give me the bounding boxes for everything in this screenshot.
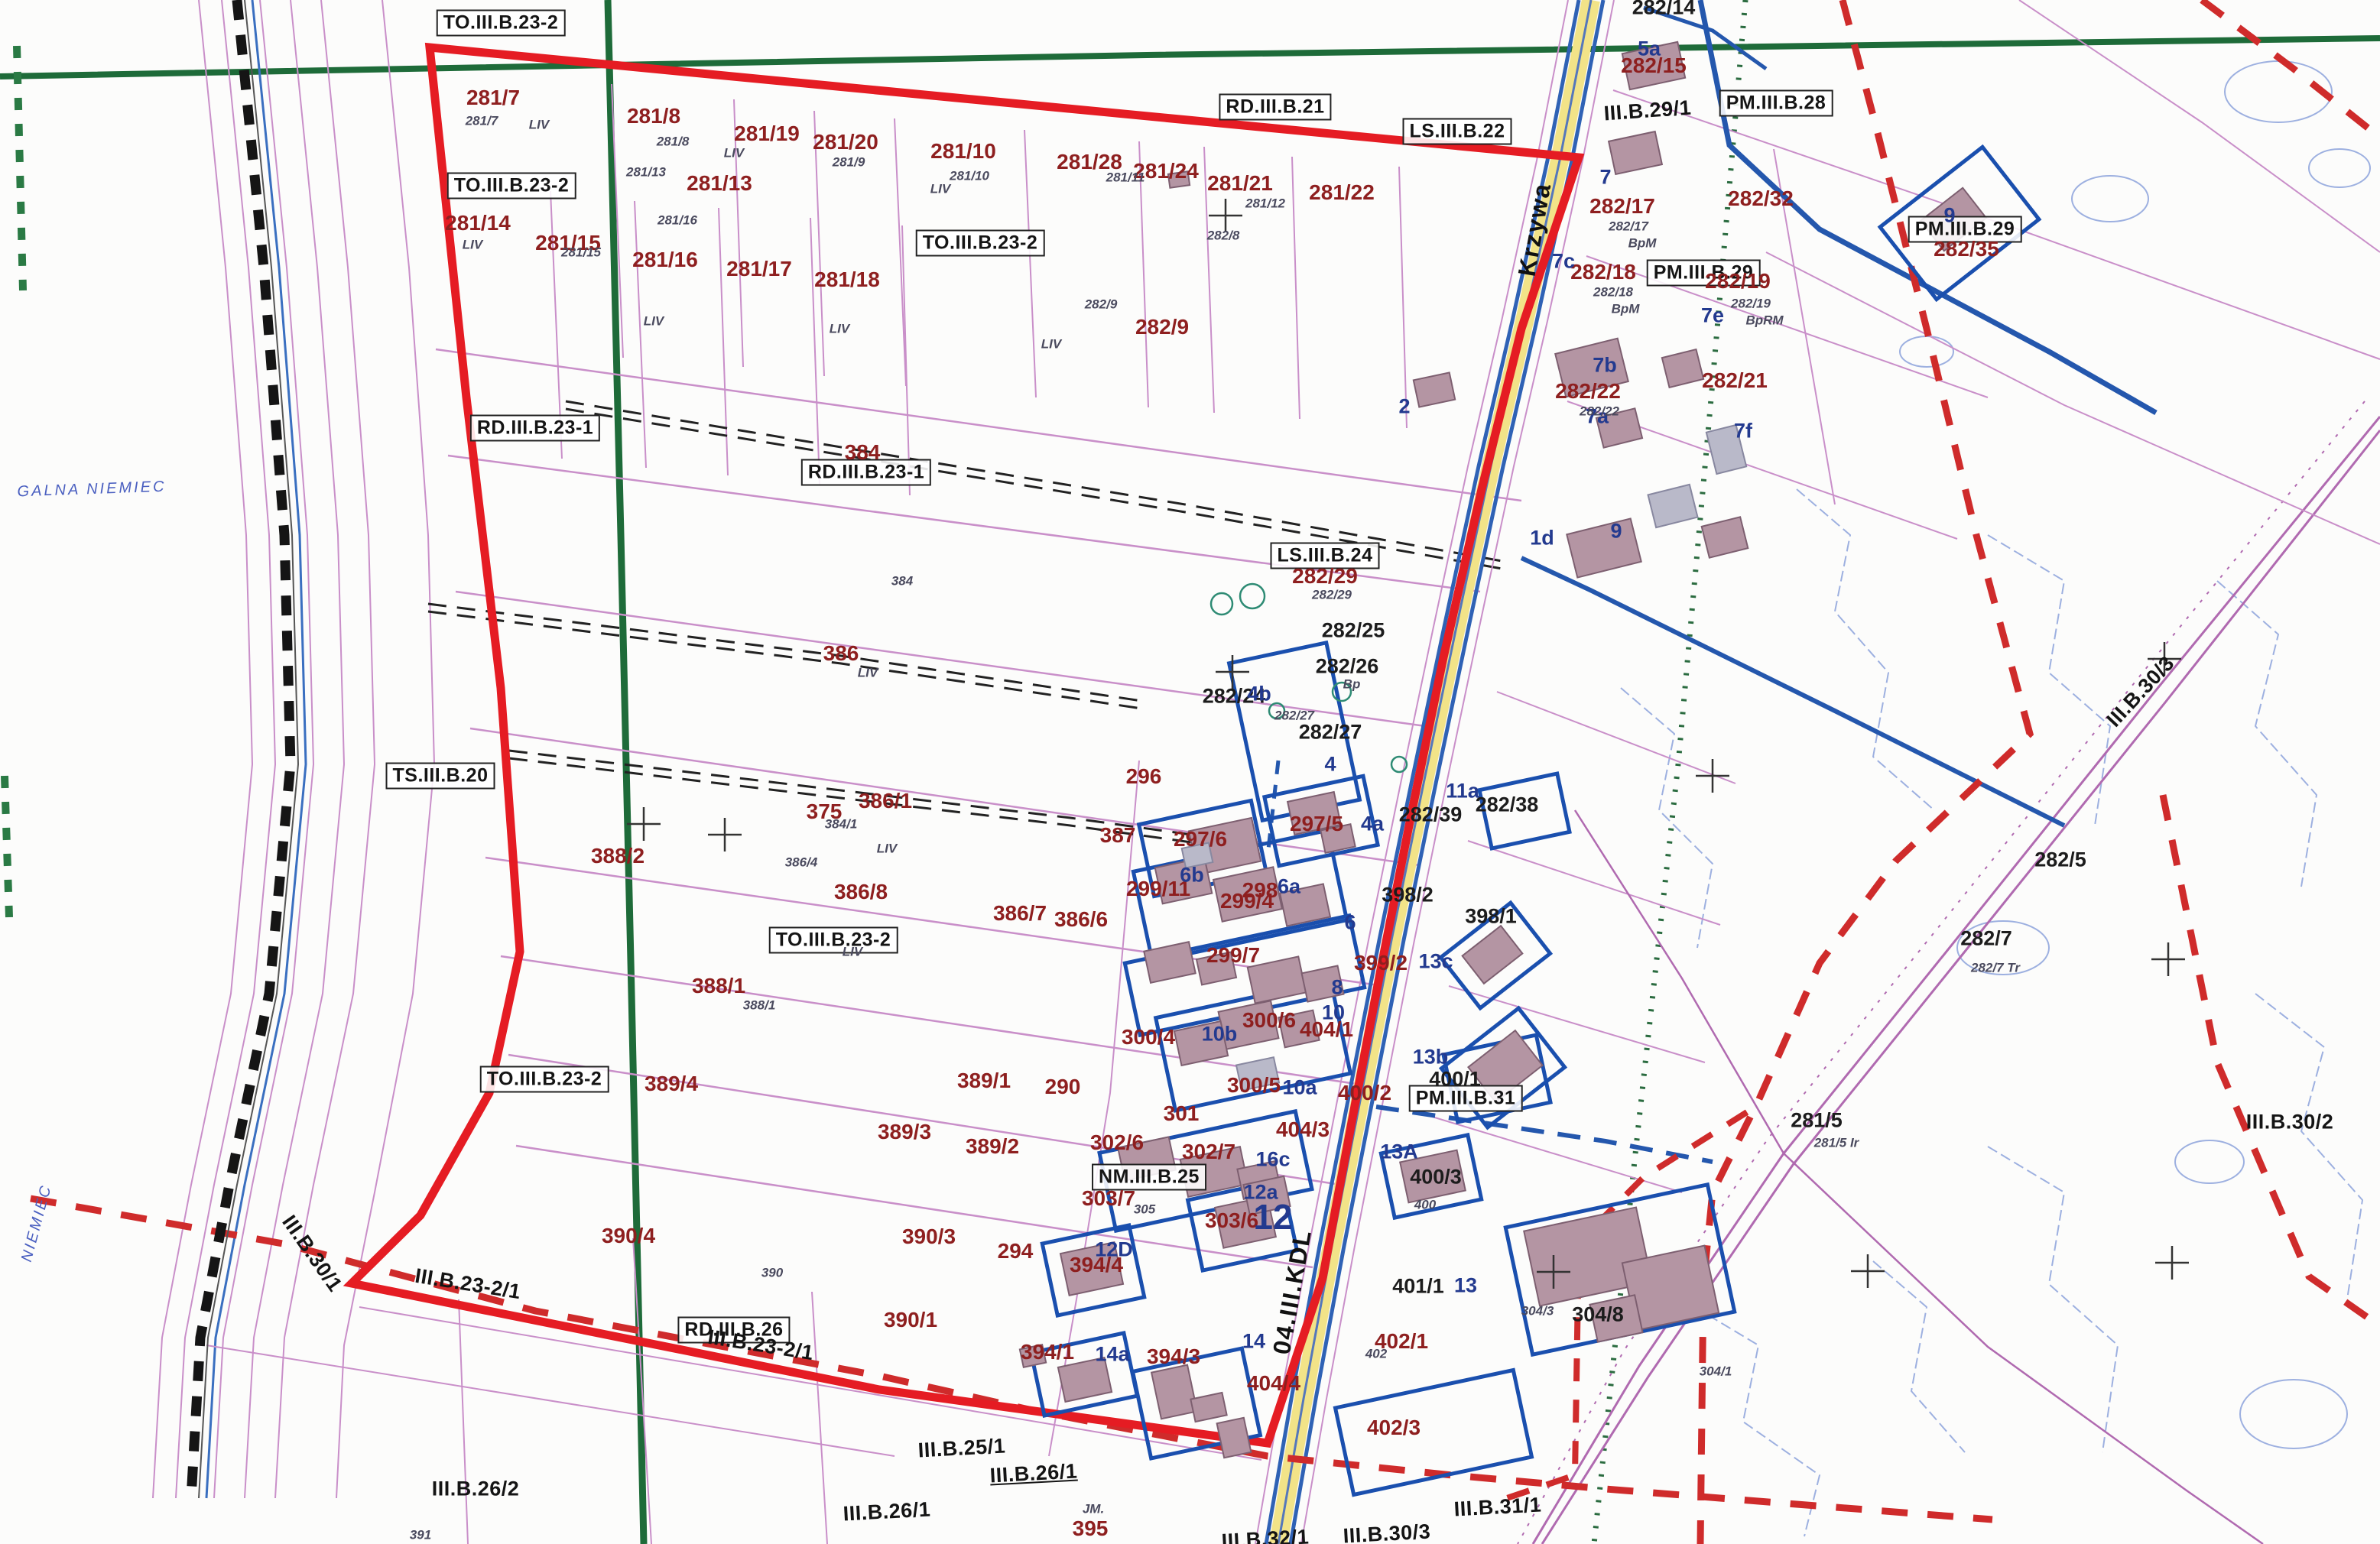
building-number: 4	[1324, 754, 1336, 775]
parcel-number: 281/10	[950, 170, 989, 183]
parcel-number: JM.	[1083, 1503, 1104, 1516]
building-number: 9	[1943, 206, 1955, 226]
building-number: 7b	[1593, 355, 1617, 376]
parcel-number: LIV	[843, 946, 862, 959]
zone-label: III.B.25/1	[917, 1436, 1006, 1461]
parcel-number: 400/1	[1429, 1069, 1481, 1090]
building-number: 4a	[1361, 814, 1384, 835]
parcel-number: BpM	[1628, 237, 1657, 250]
parcel-number: 304/8	[1572, 1305, 1624, 1325]
parcel-number: 281/10	[930, 141, 996, 162]
parcel-number: LIV	[529, 118, 549, 131]
building-number: 6	[1344, 913, 1356, 933]
parcel-number: 281/15	[561, 246, 601, 259]
parcel-number: 281/7	[466, 115, 498, 128]
building-number: 14	[1242, 1332, 1265, 1352]
parcel-number: 305	[1134, 1203, 1155, 1216]
parcel-number: 282/21	[1702, 370, 1768, 391]
zone-label: TS.III.B.20	[386, 763, 495, 790]
parcel-number: 281/17	[726, 258, 792, 280]
parcel-number: 299/7	[1206, 945, 1260, 966]
parcel-number: LIV	[1041, 338, 1061, 351]
parcel-number: 282/18	[1570, 261, 1636, 283]
parcel-number: 281/11	[1106, 171, 1145, 184]
parcel-number: 394/1	[1021, 1341, 1074, 1363]
zone-label: TO.III.B.23-2	[480, 1066, 609, 1093]
zone-label: III.B.32/1	[1221, 1527, 1310, 1544]
parcel-number: Bp	[1343, 678, 1361, 691]
zone-label: III.B.30/3	[2103, 653, 2178, 731]
building-number: 6b	[1180, 865, 1204, 886]
parcel-number: 281/5	[1791, 1111, 1843, 1131]
zone-label: TO.III.B.23-2	[437, 10, 566, 37]
zone-label: III.B.23-2/1	[414, 1266, 522, 1303]
building-number: 7e	[1701, 306, 1724, 326]
building-number: 13A	[1380, 1142, 1418, 1163]
parcel-number: 402/3	[1367, 1417, 1421, 1439]
parcel-number: 281/21	[1207, 173, 1273, 194]
handwritten-label: GALNA NIEMIEC	[17, 479, 167, 500]
parcel-number: 281/7	[466, 87, 520, 109]
zone-label: TO.III.B.23-2	[447, 173, 576, 199]
parcel-number: 386/8	[834, 881, 888, 903]
parcel-number: 389/2	[966, 1136, 1019, 1157]
building-number: 10	[1322, 1003, 1345, 1023]
parcel-number: 282/22	[1555, 381, 1621, 402]
parcel-number: 281/14	[445, 212, 511, 234]
parcel-number: 384/1	[825, 818, 858, 831]
building-number: 4b	[1247, 684, 1271, 705]
parcel-number: 400/3	[1410, 1167, 1462, 1188]
parcel-number: 282/29	[1312, 589, 1352, 602]
building-number: 7f	[1734, 421, 1752, 442]
parcel-number: 281/13	[687, 173, 752, 194]
parcel-number: 281/8	[657, 135, 690, 148]
parcel-number: 282/14	[1632, 0, 1696, 18]
building-number: 14a	[1095, 1345, 1129, 1365]
zone-label: RD.III.B.21	[1219, 94, 1331, 121]
parcel-number: LIV	[877, 842, 897, 855]
building-number: 8	[1331, 978, 1343, 998]
parcel-number: 388/1	[692, 975, 745, 997]
parcel-number: 300/5	[1227, 1075, 1281, 1096]
building-number: 13	[1454, 1276, 1477, 1296]
parcel-number: 386	[823, 643, 859, 664]
parcel-number: 282/9	[1135, 316, 1189, 338]
parcel-number: 281/16	[632, 249, 698, 271]
parcel-number: 302/7	[1182, 1141, 1235, 1163]
parcel-number: 296	[1126, 766, 1162, 787]
parcel-number: 400	[1414, 1199, 1436, 1212]
parcel-number: 282/25	[1322, 621, 1385, 641]
parcel-number: 299/4	[1220, 890, 1274, 912]
parcel-number: 389/1	[957, 1070, 1011, 1092]
parcel-number: 386/6	[1054, 909, 1108, 930]
parcel-number: 282/32	[1728, 188, 1794, 209]
parcel-number: 282/17	[1609, 220, 1648, 233]
parcel-number: 300/6	[1242, 1010, 1296, 1031]
building-number: 7	[1599, 167, 1611, 188]
parcel-number: LIV	[830, 323, 849, 336]
building-number: 7c	[1552, 251, 1575, 272]
parcel-number: 282/17	[1589, 196, 1655, 217]
parcel-number: 387	[1100, 825, 1136, 846]
parcel-number: 404/4	[1247, 1373, 1300, 1394]
parcel-number: 398/2	[1382, 885, 1434, 906]
parcel-number: 282/8	[1207, 229, 1240, 242]
parcel-number: 294	[998, 1241, 1034, 1262]
street-label: Krzywa	[1514, 180, 1554, 278]
parcel-number: 290	[1045, 1076, 1081, 1098]
parcel-number: 390	[761, 1267, 783, 1280]
parcel-number: 282/26	[1316, 657, 1379, 677]
parcel-number: BpM	[1612, 303, 1640, 316]
parcel-number: 303/7	[1082, 1188, 1135, 1209]
parcel-number: 390/4	[602, 1225, 655, 1247]
parcel-number: 282/29	[1292, 566, 1358, 587]
parcel-number: 281/8	[627, 105, 680, 127]
parcel-number: 384	[891, 575, 913, 588]
building-number: 6a	[1278, 877, 1300, 897]
parcel-number: 400/2	[1338, 1082, 1391, 1104]
building-number: 1d	[1530, 528, 1554, 549]
parcel-number: 404/3	[1276, 1119, 1330, 1140]
parcel-number: 386/7	[993, 903, 1047, 924]
parcel-number: BpRM	[1745, 314, 1783, 327]
parcel-number: 304/3	[1521, 1305, 1554, 1318]
parcel-number: LIV	[463, 238, 482, 251]
zone-label: III.B.30/3	[1343, 1522, 1431, 1544]
parcel-number: 281/19	[734, 123, 800, 144]
parcel-number: 390/1	[884, 1309, 937, 1331]
parcel-number: 282/5	[2034, 850, 2086, 871]
parcel-number: 384	[845, 442, 881, 463]
building-number: 16c	[1255, 1150, 1290, 1170]
parcel-number: LIV	[724, 147, 744, 160]
parcel-number: 281/20	[813, 131, 878, 153]
building-number: 10a	[1282, 1078, 1317, 1098]
parcel-number: 389/3	[878, 1121, 931, 1143]
zone-label: III.B.29/1	[1603, 98, 1692, 125]
building-number: 10b	[1202, 1024, 1238, 1045]
zone-label: PM.III.B.28	[1719, 90, 1833, 117]
handwritten-label: NIEMIEC	[19, 1182, 54, 1263]
parcel-number: LIV	[930, 183, 950, 196]
building-number: 13c	[1418, 952, 1453, 972]
parcel-number: 282/38	[1476, 795, 1539, 816]
zone-label: III.B.31/1	[1453, 1495, 1542, 1520]
parcel-number: 282/19	[1705, 271, 1771, 292]
parcel-number: 282/18	[1593, 286, 1633, 299]
parcel-number: 401/1	[1392, 1276, 1444, 1297]
parcel-number: 282/9	[1085, 298, 1118, 311]
parcel-number: 388/1	[743, 999, 776, 1012]
parcel-number: 282/7 Tr	[1971, 962, 2020, 975]
building-number: 13b	[1413, 1047, 1449, 1068]
parcel-number: 281/18	[814, 269, 880, 290]
zone-label: LS.III.B.22	[1403, 118, 1512, 145]
parcel-number: 282/35	[1934, 238, 1999, 260]
map-label-layer: TO.III.B.23-2TO.III.B.23-2TO.III.B.23-2R…	[0, 0, 2380, 1544]
building-number: 9	[1610, 521, 1622, 542]
zone-label: III.B.30/1	[278, 1212, 346, 1295]
building-number: 12	[1253, 1199, 1292, 1234]
parcel-number: 399/2	[1354, 952, 1408, 974]
parcel-number: 281/16	[658, 214, 697, 227]
parcel-number: 386/1	[859, 790, 912, 812]
parcel-number: 297/5	[1290, 813, 1343, 835]
building-number: 12D	[1095, 1240, 1133, 1260]
parcel-number: 398/1	[1465, 907, 1517, 927]
parcel-number: 301	[1164, 1103, 1200, 1124]
parcel-number: 402	[1365, 1348, 1387, 1361]
parcel-number: 282/39	[1399, 805, 1463, 826]
building-number: 2	[1398, 397, 1410, 417]
parcel-number: 282/22	[1580, 405, 1619, 418]
parcel-number: 389/4	[645, 1073, 698, 1095]
building-number: 5a	[1638, 39, 1661, 60]
parcel-number: 282/19	[1731, 297, 1771, 310]
street-label: 04.III.KDL	[1269, 1228, 1315, 1357]
parcel-number: 391	[410, 1529, 431, 1542]
parcel-number: LIV	[858, 667, 878, 680]
parcel-number: 282/27	[1274, 709, 1314, 722]
parcel-number: 303/6	[1205, 1210, 1258, 1231]
parcel-number: 281/12	[1245, 197, 1285, 210]
building-number: 11a	[1446, 781, 1479, 802]
zone-label: III.B.30/2	[2246, 1112, 2334, 1133]
parcel-number: 390/3	[902, 1226, 956, 1247]
parcel-number: 394/3	[1147, 1346, 1200, 1367]
zone-label: RD.III.B.23-1	[470, 415, 600, 442]
zone-label: III.B.26/1	[843, 1500, 931, 1525]
parcel-number: 297/6	[1174, 829, 1227, 850]
parcel-number: 282/27	[1299, 722, 1362, 743]
parcel-number: 386/4	[785, 856, 818, 869]
zone-label: III.B.26/1	[989, 1461, 1078, 1487]
parcel-number: LIV	[644, 315, 664, 328]
parcel-number: 281/9	[833, 156, 865, 169]
parcel-number: 304/1	[1700, 1365, 1732, 1378]
zone-label: TO.III.B.23-2	[769, 927, 898, 954]
parcel-number: 281/5 Ir	[1814, 1137, 1859, 1150]
parcel-number: 281/22	[1309, 182, 1375, 203]
zone-label: III.B.26/2	[432, 1479, 520, 1500]
zone-label: TO.III.B.23-2	[916, 230, 1045, 257]
cadastral-map[interactable]: TO.III.B.23-2TO.III.B.23-2TO.III.B.23-2R…	[0, 0, 2380, 1544]
parcel-number: 388/2	[591, 845, 645, 867]
parcel-number: 302/6	[1090, 1132, 1144, 1153]
parcel-number: 300/4	[1122, 1027, 1175, 1048]
parcel-number: 281/13	[626, 166, 666, 179]
parcel-number: 395	[1073, 1518, 1109, 1539]
parcel-number: 282/7	[1960, 929, 2012, 949]
